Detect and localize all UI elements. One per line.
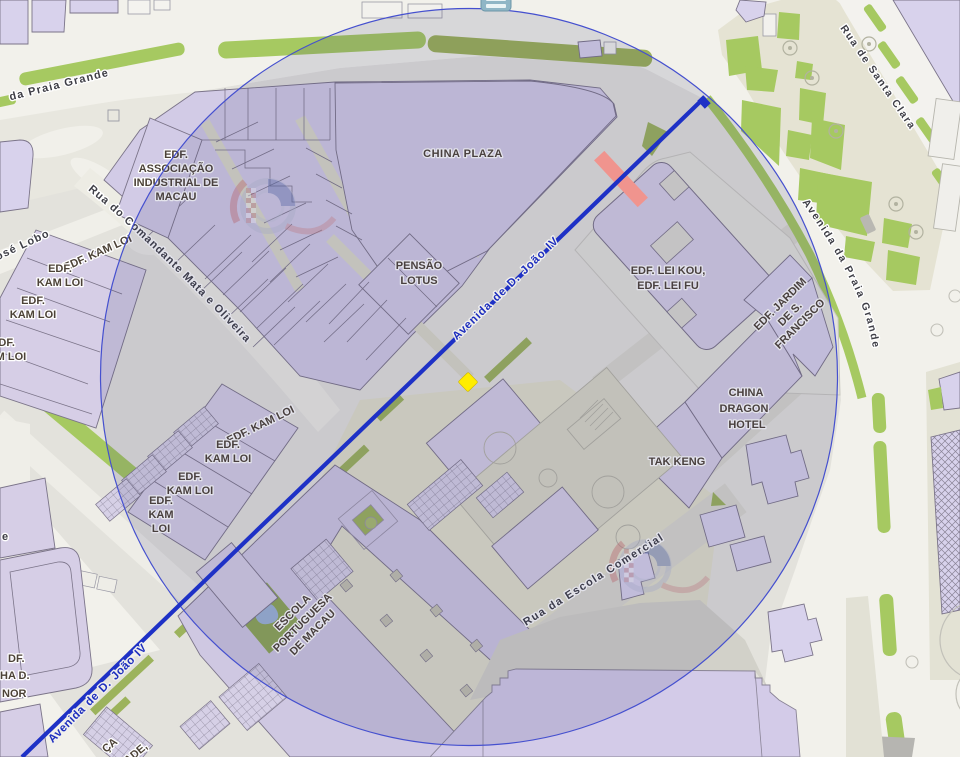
svg-text:DF.: DF. <box>8 653 25 665</box>
svg-text:KAM LOI: KAM LOI <box>10 309 56 321</box>
svg-text:HA D.: HA D. <box>0 670 30 682</box>
svg-text:KAM LOI: KAM LOI <box>0 351 26 363</box>
svg-text:NOR: NOR <box>2 688 27 700</box>
svg-text:EDF.: EDF. <box>0 337 15 349</box>
svg-text:EDF.: EDF. <box>21 295 45 307</box>
svg-text:EDF.: EDF. <box>48 263 72 275</box>
svg-text:KAM LOI: KAM LOI <box>37 277 83 289</box>
svg-text:e: e <box>2 531 8 543</box>
